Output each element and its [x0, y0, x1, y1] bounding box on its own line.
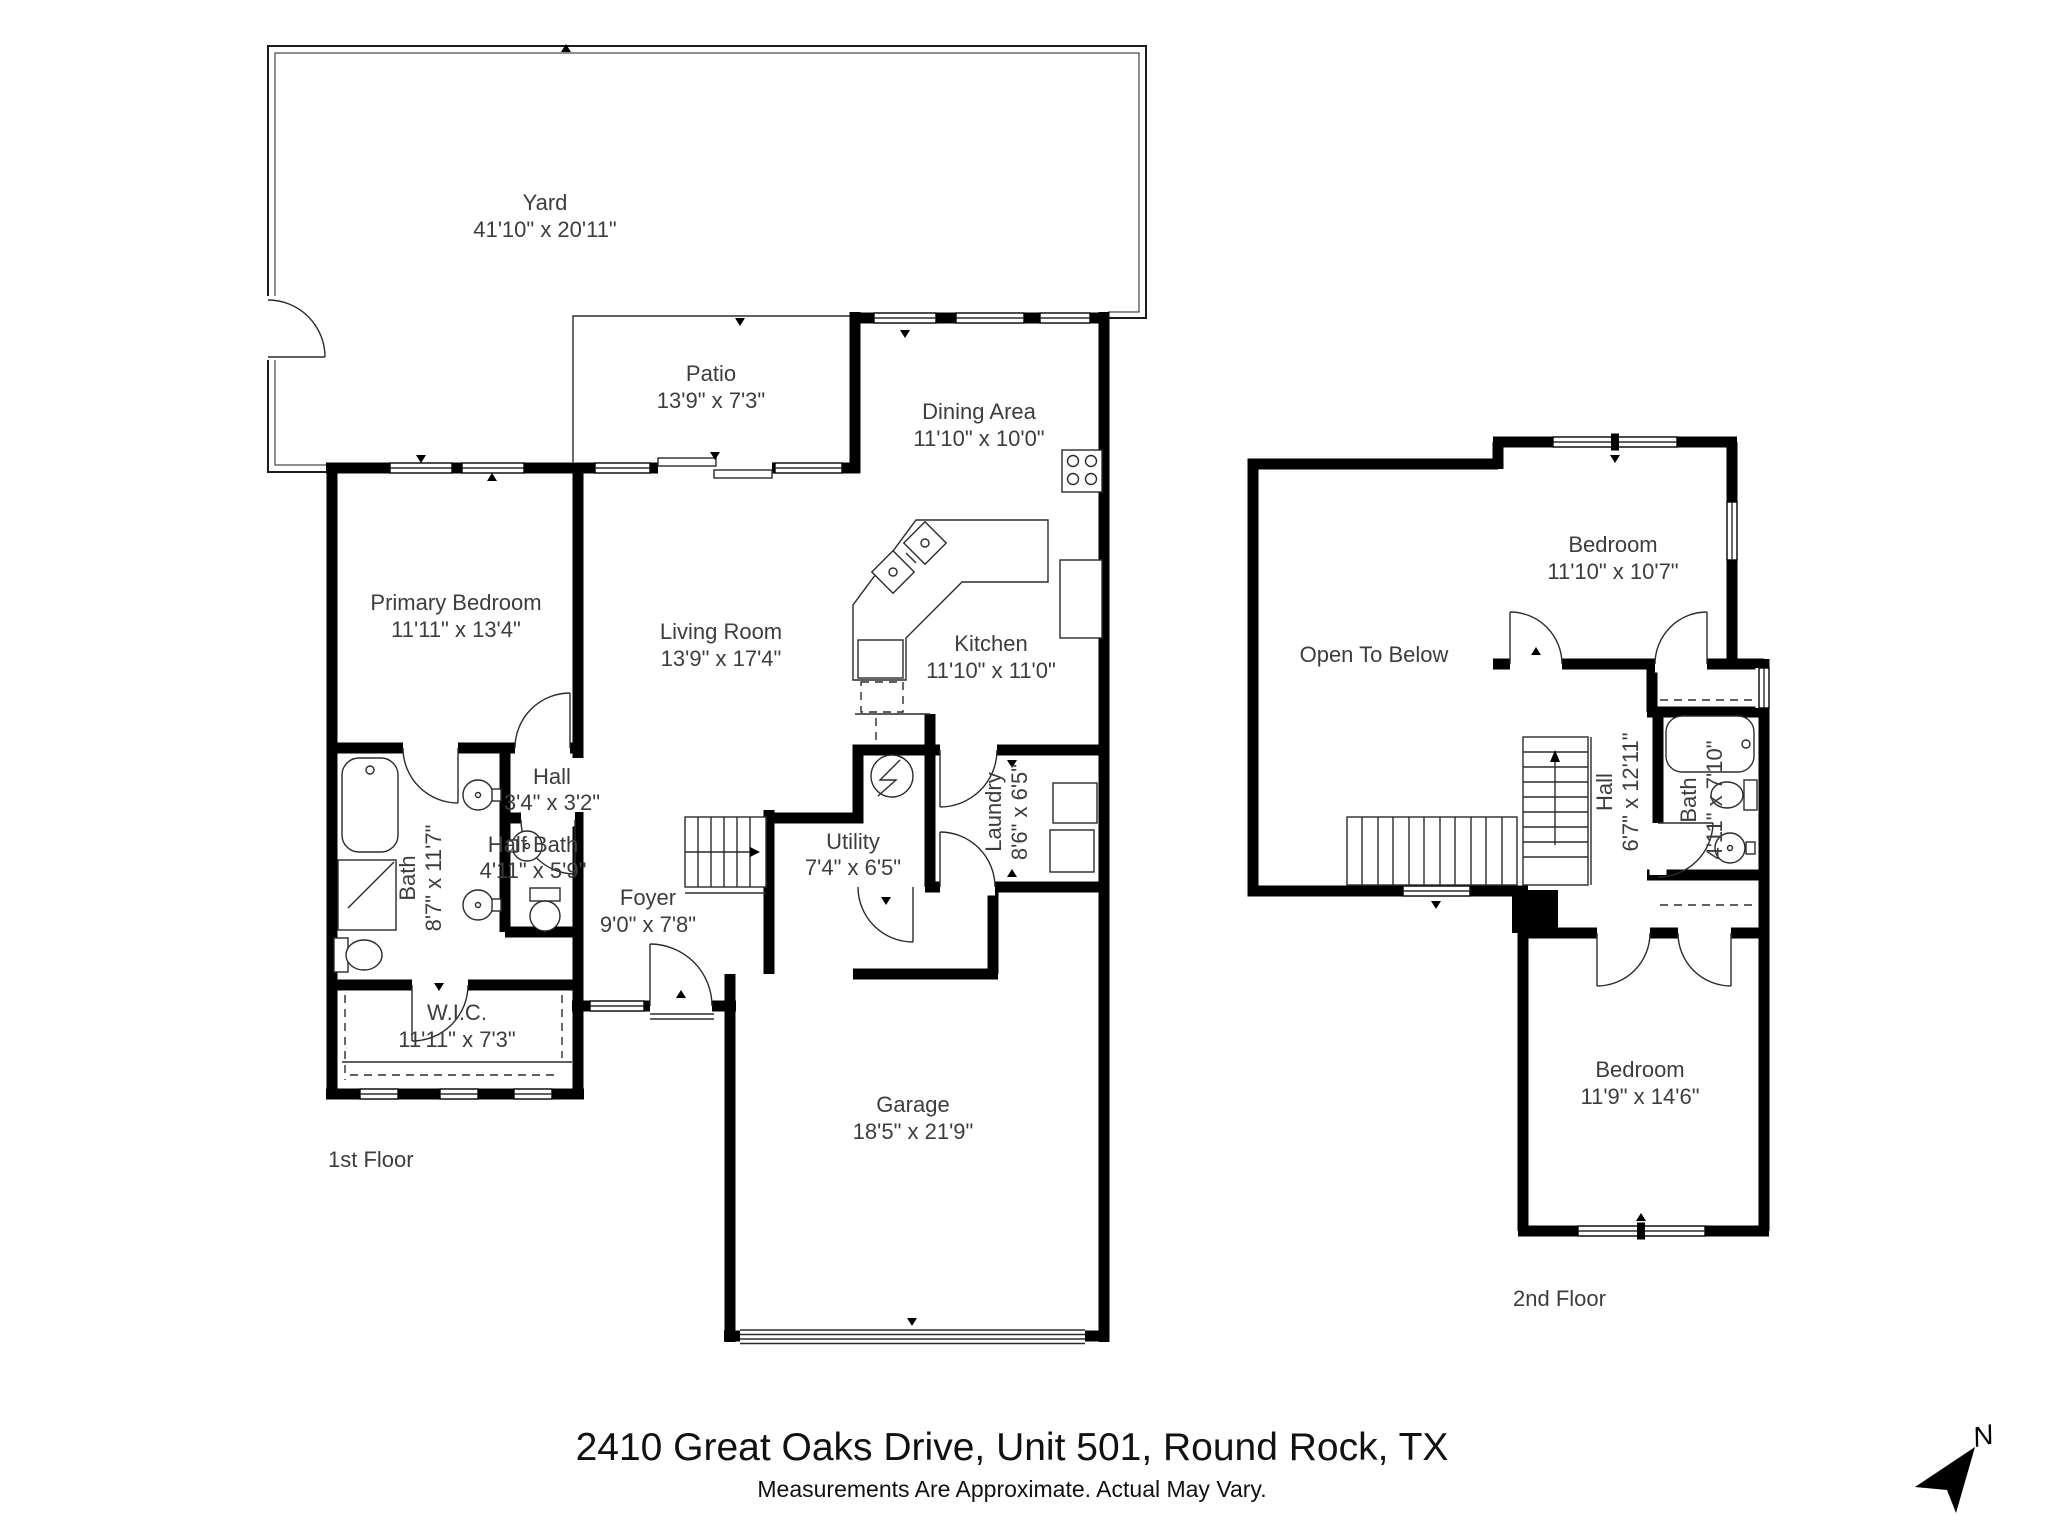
kitchen-label: Kitchen	[954, 631, 1027, 656]
bath-second-label: Bath	[1676, 777, 1701, 822]
north-arrow-icon	[1915, 1447, 1975, 1513]
patio-dims: 13'9" x 7'3"	[657, 388, 765, 413]
open-to-below-label: Open To Below	[1300, 642, 1449, 667]
half-bath-dims: 4'11" x 5'9"	[480, 858, 587, 883]
wic-label: W.I.C.	[427, 1000, 487, 1025]
primary-bedroom-label: Primary Bedroom	[370, 590, 541, 615]
bedroom-bottom-dims: 11'9" x 14'6"	[1580, 1084, 1699, 1109]
utility-label: Utility	[826, 829, 880, 854]
hall-dims: 3'4" x 3'2"	[504, 790, 600, 815]
room-labels-first-floor: Yard 41'10" x 20'11" Patio 13'9" x 7'3" …	[328, 190, 1056, 1172]
yard-dims: 41'10" x 20'11"	[473, 217, 617, 242]
half-bath-toilet-icon	[530, 888, 560, 931]
laundry-label: Laundry	[981, 772, 1006, 852]
fridge-icon	[1060, 560, 1102, 638]
first-floor-caption: 1st Floor	[328, 1147, 414, 1172]
utility-dims: 7'4" x 6'5"	[805, 855, 901, 880]
toilet-icon	[334, 938, 382, 972]
compass: N	[1915, 1418, 1997, 1513]
foyer-label: Foyer	[620, 885, 676, 910]
foyer-dims: 9'0" x 7'8"	[600, 912, 696, 937]
garage-label: Garage	[876, 1092, 949, 1117]
half-bath-label: Half Bath	[488, 832, 579, 857]
laundry-dims: 8'6" x 6'5"	[1007, 764, 1032, 860]
staircase-second-floor	[1347, 737, 1591, 885]
bath-dims: 8'7" x 11'7"	[421, 825, 446, 932]
bedroom-bottom-label: Bedroom	[1595, 1057, 1684, 1082]
dining-dims: 11'10" x 10'0"	[913, 426, 1044, 451]
kitchen-dims: 11'10" x 11'0"	[926, 658, 1056, 683]
address-title: 2410 Great Oaks Drive, Unit 501, Round R…	[576, 1426, 1449, 1469]
hall-second-label: Hall	[1592, 773, 1617, 811]
bathtub-icon	[342, 758, 398, 852]
title-block: 2410 Great Oaks Drive, Unit 501, Round R…	[576, 1426, 1449, 1502]
second-floor-caption: 2nd Floor	[1513, 1286, 1606, 1311]
bedroom-top-dims: 11'10" x 10'7"	[1547, 559, 1678, 584]
living-room-label: Living Room	[660, 619, 782, 644]
living-room-dims: 13'9" x 17'4"	[661, 646, 782, 671]
primary-bedroom-dims: 11'11" x 13'4"	[391, 617, 521, 642]
water-heater-icon	[871, 755, 913, 797]
shower-icon	[338, 860, 396, 930]
floor-plan-canvas: Yard 41'10" x 20'11" Patio 13'9" x 7'3" …	[0, 0, 2048, 1536]
yard-label: Yard	[523, 190, 568, 215]
disclaimer: Measurements Are Approximate. Actual May…	[757, 1476, 1266, 1502]
bedroom-top-label: Bedroom	[1568, 532, 1657, 557]
bath-label: Bath	[395, 855, 420, 900]
patio-label: Patio	[686, 361, 736, 386]
garage-dims: 18'5" x 21'9"	[853, 1119, 974, 1144]
staircase-first-floor	[685, 817, 766, 893]
dining-label: Dining Area	[922, 399, 1037, 424]
washer-dryer-icon	[1050, 783, 1097, 872]
wic-dims: 11'11" x 7'3"	[398, 1027, 515, 1052]
bath-second-dims: 4'11" x 7'10"	[1702, 740, 1727, 859]
stove-icon	[1062, 450, 1102, 492]
hall-second-dims: 6'7" x 12'11"	[1618, 732, 1643, 851]
hall-label: Hall	[533, 764, 571, 789]
